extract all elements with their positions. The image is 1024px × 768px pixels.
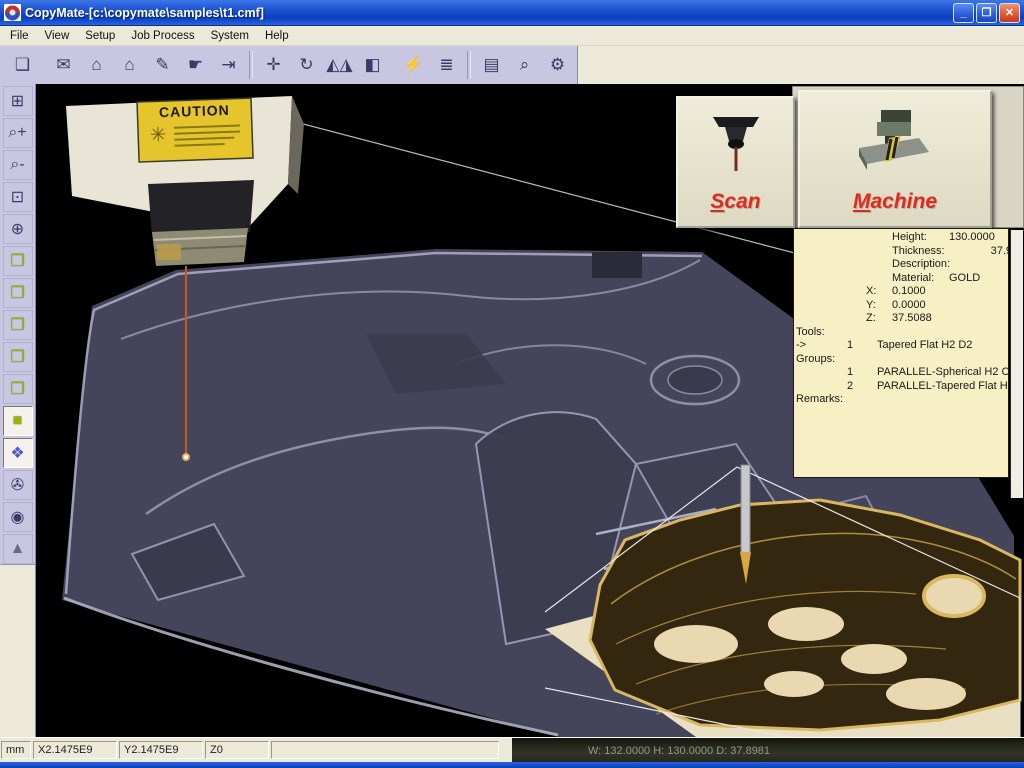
light-source-icon[interactable]: ▲ <box>3 534 33 564</box>
y-value: 0.0000 <box>892 299 926 311</box>
svg-text:CAUTION: CAUTION <box>159 102 230 120</box>
view-sidebar: ⊞ ⌕+ ⌕- ⊡ ⊕ ❒ ❒ ❒ ❒ ❒ ■ ❖ ✇ ◉ ▲ <box>0 84 36 737</box>
minimize-button[interactable]: _ <box>953 3 974 23</box>
machine-icon <box>855 108 935 174</box>
thickness-value: 37.9 <box>991 245 1008 259</box>
close-button[interactable]: ✕ <box>999 3 1020 23</box>
menu-help[interactable]: Help <box>257 28 297 44</box>
tool-name: Tapered Flat H2 D2 <box>877 339 972 351</box>
verify-find-icon[interactable]: ⌕ <box>509 50 540 81</box>
mirror-icon[interactable]: ◭◮ <box>324 50 355 81</box>
probe-raise-icon[interactable]: ⌂ <box>81 50 112 81</box>
exit-door-icon[interactable]: ⇥ <box>213 50 244 81</box>
edit-path-icon[interactable]: ✎ <box>147 50 178 81</box>
machine-button-label: Machine <box>853 190 937 214</box>
tools-header: Tools: <box>794 326 1008 340</box>
view-front-icon[interactable]: ❒ <box>3 278 33 308</box>
group-name: PARALLEL-Tapered Flat H2 <box>877 380 1008 392</box>
x-label: X: <box>866 285 892 299</box>
z-value: 37.5088 <box>892 312 932 324</box>
x-value: 0.1000 <box>892 285 926 297</box>
x-coordinate-cell: X2.1475E9 <box>33 741 117 759</box>
units-cell: mm <box>1 741 31 759</box>
y-coordinate-cell: Y2.1475E9 <box>119 741 203 759</box>
job-info-panel: Height:130.0000 Thickness:37.9 Descripti… <box>793 228 1009 478</box>
probe-icon <box>709 111 763 177</box>
view-isometric-icon[interactable]: ■ <box>3 406 33 436</box>
camera-record-icon[interactable]: ✇ <box>3 470 33 500</box>
render-shaded-icon[interactable]: ❖ <box>3 438 33 468</box>
toolbar: ❏ ✉ ⌂ ⌂ ✎ ☛ ⇥ ✛ ↻ ◭◮ ◧ ⚡ ≣ ▤ ⌕ ⚙ <box>0 46 1024 85</box>
rotate-view-icon[interactable]: ↻ <box>291 50 322 81</box>
scan-job-icon[interactable]: ▤ <box>476 50 507 81</box>
caution-label: CAUTION ✳ <box>137 98 253 162</box>
view-back-icon[interactable]: ❒ <box>3 342 33 372</box>
tool-marker: -> <box>794 339 847 353</box>
panel-scroll-strip[interactable] <box>1010 230 1023 498</box>
layout-grid-icon[interactable]: ⊞ <box>3 86 33 116</box>
laser-spot <box>183 454 189 460</box>
group-name: PARALLEL-Spherical H2 C1 <box>877 366 1008 378</box>
status-filler-cell <box>271 741 499 759</box>
group-number: 2 <box>847 380 877 394</box>
z-coordinate-cell: Z0 <box>205 741 269 759</box>
machine-button[interactable]: Machine <box>798 90 992 228</box>
groups-header: Groups: <box>794 353 1008 367</box>
remarks-header: Remarks: <box>794 393 1008 407</box>
view-side-icon[interactable]: ❒ <box>3 310 33 340</box>
height-value: 130.0000 <box>949 231 995 243</box>
open-file-icon[interactable]: ✉ <box>48 50 79 81</box>
machine-connect-icon[interactable]: ⚡ <box>398 50 429 81</box>
pan-view-icon[interactable]: ✛ <box>258 50 289 81</box>
material-label: Material: <box>892 272 949 286</box>
view-top-icon[interactable]: ❒ <box>3 246 33 276</box>
group-number: 1 <box>847 366 877 380</box>
scan-button[interactable]: Scan <box>676 96 795 228</box>
material-value: GOLD <box>949 272 980 284</box>
view-corner-icon[interactable]: ❒ <box>3 374 33 404</box>
probe-lower-icon[interactable]: ⌂ <box>114 50 145 81</box>
zoom-window-icon[interactable]: ⊡ <box>3 182 33 212</box>
description-label: Description: <box>892 258 949 272</box>
menu-view[interactable]: View <box>37 28 78 44</box>
sidebar-filler <box>0 564 35 737</box>
scan-button-label: Scan <box>710 190 760 214</box>
y-label: Y: <box>866 299 892 313</box>
work-area: ⊞ ⌕+ ⌕- ⊡ ⊕ ❒ ❒ ❒ ❒ ❒ ■ ❖ ✇ ◉ ▲ <box>0 84 1024 737</box>
laser-sunburst-icon: ✳ <box>149 124 167 147</box>
app-icon <box>4 4 21 21</box>
layers-book-icon[interactable]: ≣ <box>431 50 462 81</box>
menu-system[interactable]: System <box>203 28 257 44</box>
dimensions-readout: W: 132.0000 H: 130.0000 D: 37.8981 <box>512 738 1024 763</box>
new-file-icon[interactable]: ❏ <box>7 50 38 81</box>
height-label: Height: <box>892 231 949 245</box>
menu-job-process[interactable]: Job Process <box>123 28 202 44</box>
menu-file[interactable]: File <box>2 28 37 44</box>
zoom-in-icon[interactable]: ⌕+ <box>3 118 33 148</box>
window-bottom-border <box>0 762 1024 768</box>
eye-visibility-icon[interactable]: ◉ <box>3 502 33 532</box>
thickness-label: Thickness: <box>892 245 949 259</box>
menu-setup[interactable]: Setup <box>77 28 123 44</box>
restore-button[interactable]: ❐ <box>976 3 997 23</box>
status-bar: mm X2.1475E9 Y2.1475E9 Z0 W: 132.0000 H:… <box>0 737 1024 762</box>
system-settings-icon[interactable]: ⚙ <box>542 50 573 81</box>
pointer-tools-icon[interactable]: ☛ <box>180 50 211 81</box>
rotate-sphere-icon[interactable]: ⊕ <box>3 214 33 244</box>
zoom-out-icon[interactable]: ⌕- <box>3 150 33 180</box>
toolbar-group: ❏ ✉ ⌂ ⌂ ✎ ☛ ⇥ ✛ ↻ ◭◮ ◧ ⚡ ≣ ▤ ⌕ ⚙ <box>0 46 578 85</box>
fill-shade-icon[interactable]: ◧ <box>357 50 388 81</box>
title-bar: CopyMate-[c:\copymate\samples\t1.cmf] _ … <box>0 0 1024 26</box>
z-label: Z: <box>866 312 892 326</box>
tool-number: 1 <box>847 339 877 353</box>
window-title: CopyMate-[c:\copymate\samples\t1.cmf] <box>25 6 951 20</box>
viewport-3d[interactable]: CAUTION ✳ <box>36 84 1024 737</box>
menu-bar: File View Setup Job Process System Help <box>0 26 1024 46</box>
